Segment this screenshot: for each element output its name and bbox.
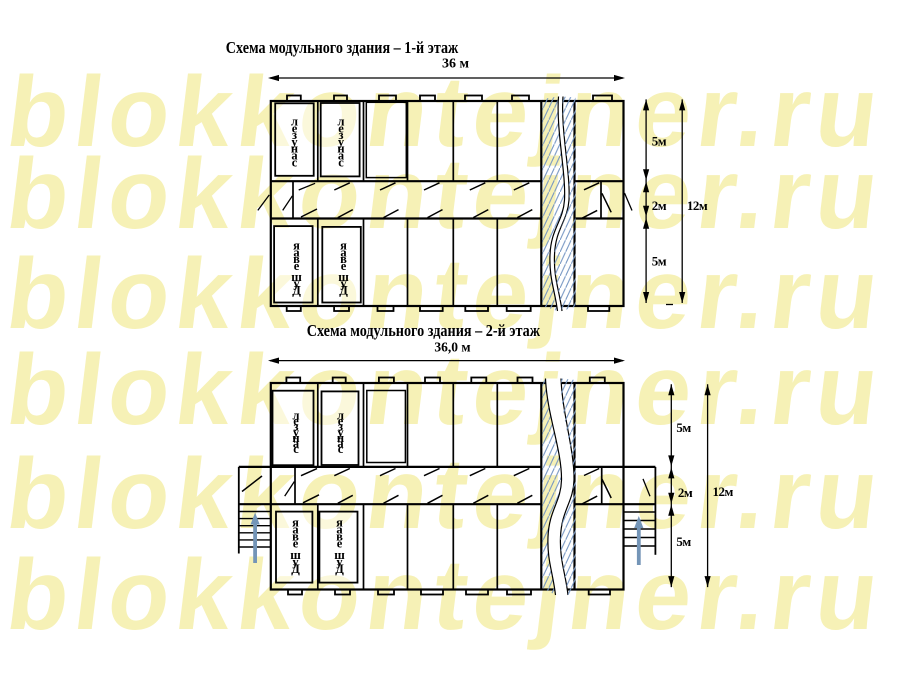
svg-text:12м: 12м [713,484,734,499]
svg-text:Схема модульного здания – 2-й: Схема модульного здания – 2-й этаж [307,321,541,340]
svg-text:Схема модульного здания – 1-й: Схема модульного здания – 1-й этаж [226,38,459,57]
svg-text:2м: 2м [652,198,667,213]
svg-text:12м: 12м [687,198,708,213]
svg-text:лезунас: лезунас [291,115,298,170]
svg-text:36,0 м: 36,0 м [434,340,470,355]
svg-text:5м: 5м [676,534,691,549]
svg-text:5м: 5м [676,420,691,435]
svg-text:лезунас: лезунас [337,409,344,457]
svg-text:5м: 5м [652,253,667,268]
svg-text:36 м: 36 м [442,57,470,72]
svg-text:лезунас: лезунас [337,115,344,170]
svg-text:2м: 2м [678,485,693,500]
svg-text:лезунас: лезунас [292,409,299,457]
svg-text:5м: 5м [652,134,667,149]
